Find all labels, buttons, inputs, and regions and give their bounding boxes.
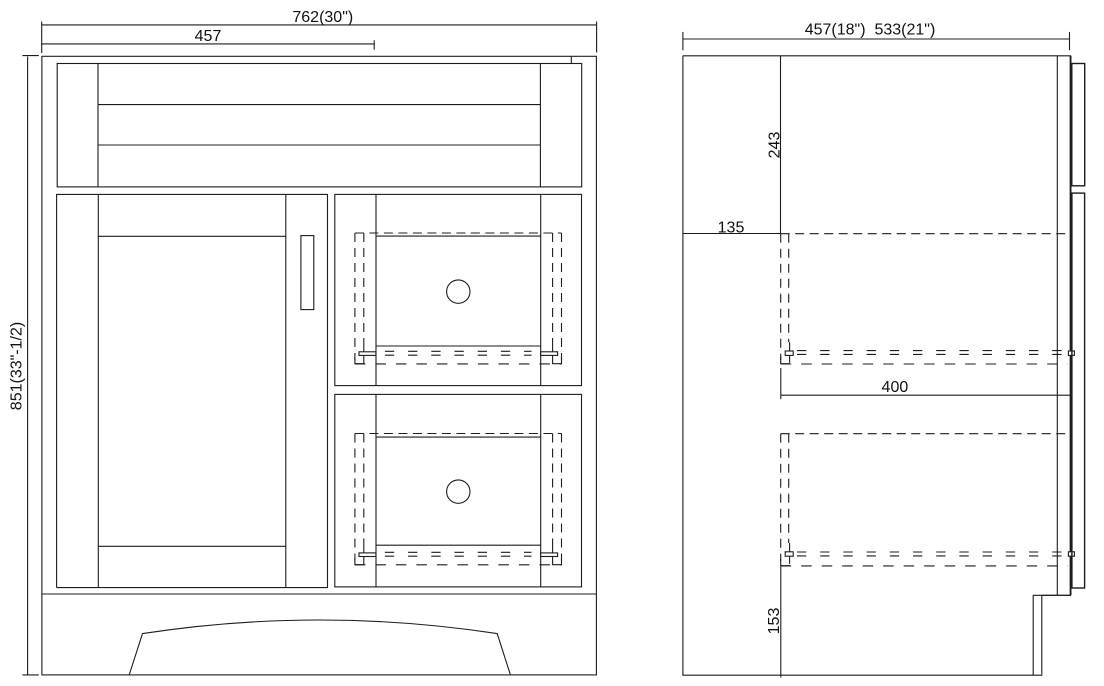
svg-text:400: 400 xyxy=(882,379,909,396)
svg-text:457: 457 xyxy=(195,28,222,45)
svg-text:762(30"): 762(30") xyxy=(292,9,353,26)
svg-text:243: 243 xyxy=(767,132,784,159)
svg-text:851(33"-1/2): 851(33"-1/2) xyxy=(9,322,26,410)
svg-text:153: 153 xyxy=(766,608,783,635)
svg-text:135: 135 xyxy=(718,219,745,236)
svg-text:457(18") 533(21"): 457(18") 533(21") xyxy=(805,22,936,39)
